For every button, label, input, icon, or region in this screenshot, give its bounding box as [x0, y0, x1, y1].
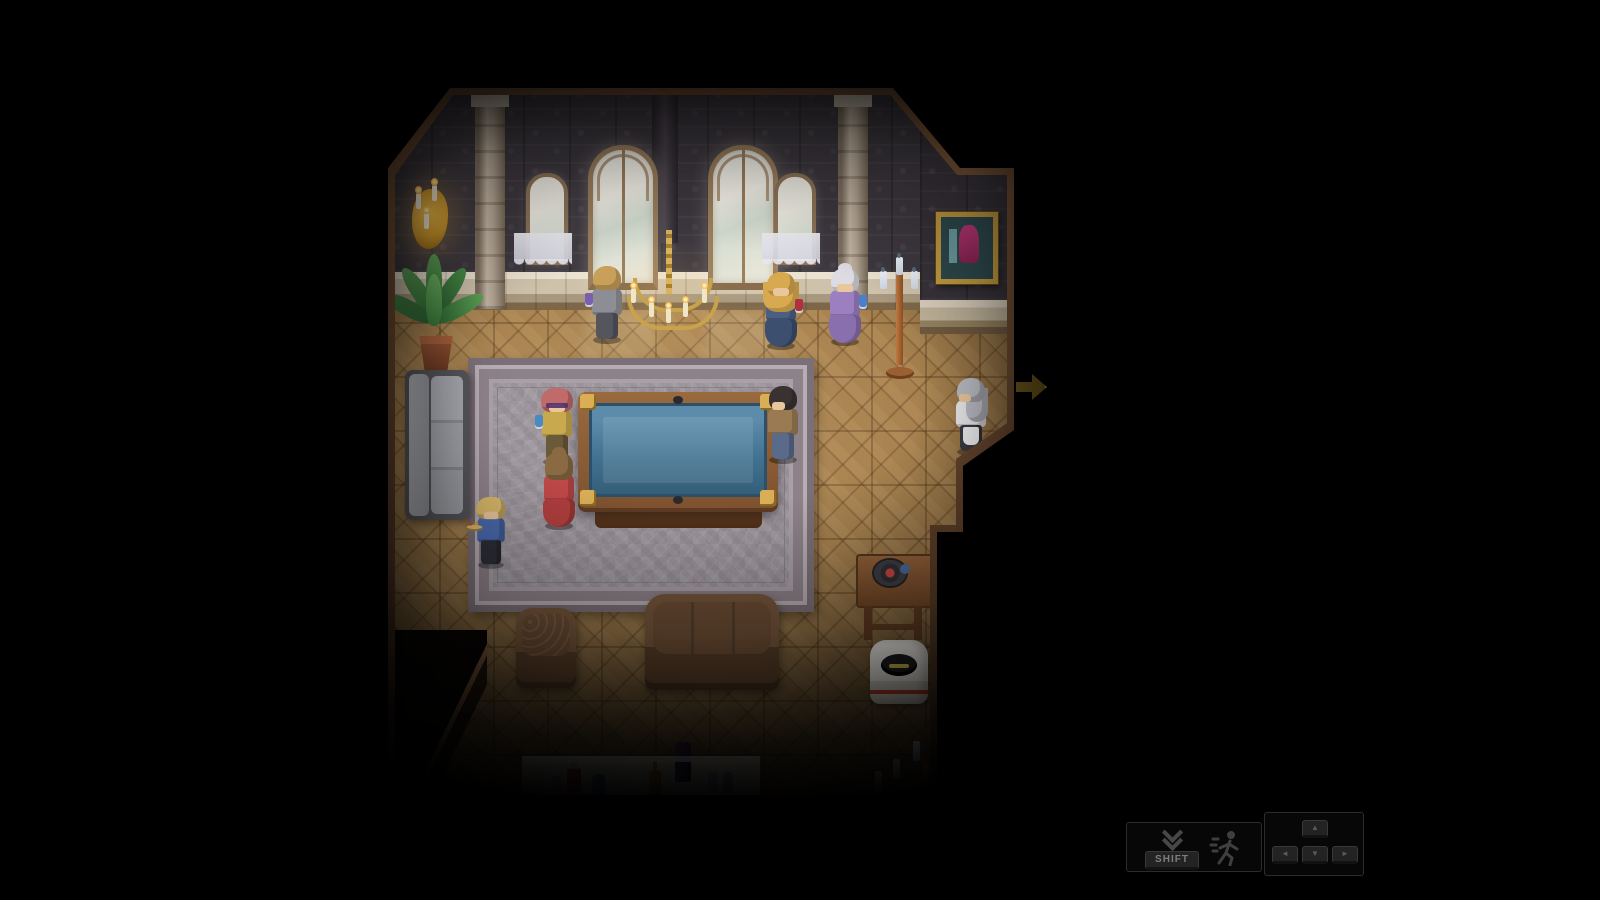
npc-legs	[772, 433, 794, 459]
drinking-glass	[552, 776, 561, 792]
shift-key[interactable]: SHIFT	[1145, 851, 1199, 870]
candle-icon	[875, 771, 882, 791]
candle-icon	[911, 271, 918, 289]
goblet	[723, 772, 733, 794]
table-crossbar	[864, 624, 922, 630]
npc-gown	[543, 499, 575, 527]
framed-painting	[936, 212, 998, 284]
ice-bucket	[870, 640, 928, 704]
candle-flame-icon	[424, 213, 429, 229]
refreshment-table	[522, 756, 760, 810]
candle-flame-icon	[649, 302, 654, 317]
exit-arrow-tail	[1016, 382, 1032, 392]
exit-arrow-head	[1032, 374, 1047, 400]
npc-elderly-woman[interactable]	[826, 268, 864, 344]
npc-face	[959, 394, 971, 402]
billiard-table	[578, 392, 778, 508]
candelabra-arm	[883, 761, 928, 800]
standing-candelabra	[880, 255, 920, 379]
npc-legs	[481, 540, 501, 564]
game-viewport: SHIFT ▲ ◄ ▼ ►	[0, 0, 1600, 900]
npc-blonde-woman[interactable]	[762, 272, 800, 348]
table-corner-pocket	[760, 490, 776, 506]
candelabra-base	[886, 367, 914, 379]
candelabra-pole	[896, 269, 903, 365]
npc-torso	[768, 408, 798, 435]
potted-plant	[400, 252, 470, 370]
goblet-icon	[535, 415, 543, 427]
npc-face	[773, 288, 789, 296]
table-leg	[864, 606, 872, 640]
candle-icon	[880, 271, 887, 289]
billiards-parlor-room	[385, 85, 1045, 810]
plant-pot	[418, 336, 454, 370]
npc-red-dress-woman[interactable]	[540, 452, 578, 528]
drink-glass-icon	[859, 295, 867, 307]
decorative-column	[475, 93, 505, 309]
npc-torso	[830, 290, 860, 317]
candle-icon	[896, 257, 903, 275]
npc-torso	[542, 410, 572, 437]
double-down-chevron-icon	[1165, 825, 1180, 848]
candle-flame-icon	[683, 302, 688, 317]
move-up-key[interactable]: ▲	[1302, 820, 1328, 838]
plant-leaf	[426, 274, 442, 326]
sofa	[645, 594, 779, 690]
candle-icon	[913, 741, 920, 761]
npc-face	[837, 284, 853, 292]
npc-gown	[829, 315, 861, 343]
npc-hair-bun	[838, 263, 852, 274]
move-hint-panel: ▲ ◄ ▼ ►	[1264, 812, 1364, 876]
npc-hair-bun	[552, 447, 566, 458]
lace-valance	[514, 233, 572, 259]
table-corner-pocket	[580, 394, 596, 410]
npc-face	[772, 402, 785, 410]
lace-valance	[762, 233, 820, 259]
blue-bottle	[592, 774, 605, 795]
billiard-table-base	[595, 508, 762, 528]
exit-arrow-icon[interactable]	[1016, 374, 1048, 400]
wall-sconce	[408, 183, 452, 259]
dark-wine-bottle	[675, 742, 691, 782]
goblet	[708, 772, 718, 794]
room-interior	[385, 85, 1045, 810]
armchair	[516, 608, 576, 688]
move-down-key[interactable]: ▼	[1302, 846, 1328, 864]
dash-key-stack: SHIFT	[1145, 825, 1199, 870]
gramophone-table	[856, 554, 930, 646]
floor-candelabra	[873, 733, 931, 810]
npc-face	[484, 512, 499, 519]
candle-flame-icon	[416, 193, 421, 209]
candle-flame-icon	[666, 308, 671, 323]
drink-glass-icon	[585, 293, 593, 305]
candle-flame-icon	[702, 288, 707, 303]
table-leg	[914, 606, 922, 640]
billiard-felt	[589, 403, 767, 497]
dash-hint-panel: SHIFT	[1126, 822, 1262, 872]
candle-flame-icon	[432, 185, 437, 201]
table-side-pocket	[673, 496, 683, 504]
amber-bottle	[649, 770, 661, 797]
table-side-pocket	[673, 396, 683, 404]
candle-icon	[893, 759, 900, 779]
runner-icon	[1209, 828, 1243, 866]
corner-wall-shadow	[395, 630, 487, 810]
move-left-key[interactable]: ◄	[1272, 846, 1298, 864]
npc-young-server[interactable]	[474, 497, 509, 567]
serving-tray-icon	[466, 525, 483, 531]
red-bottle	[567, 768, 581, 794]
move-right-key[interactable]: ►	[1332, 846, 1358, 864]
candle-flame-icon	[631, 288, 636, 303]
alcove-wainscot	[920, 300, 1045, 334]
npc-gown	[765, 319, 797, 347]
maid-apron	[963, 427, 979, 445]
gold-chandelier	[625, 230, 713, 350]
gramophone-disc	[874, 560, 906, 586]
gray-couch	[405, 370, 469, 520]
table-corner-pocket	[580, 490, 596, 506]
npc-torso	[477, 517, 505, 542]
glasses-icon	[546, 403, 568, 408]
drink-glass-icon	[795, 299, 803, 311]
npc-brown-jacket-man[interactable]	[764, 386, 802, 462]
